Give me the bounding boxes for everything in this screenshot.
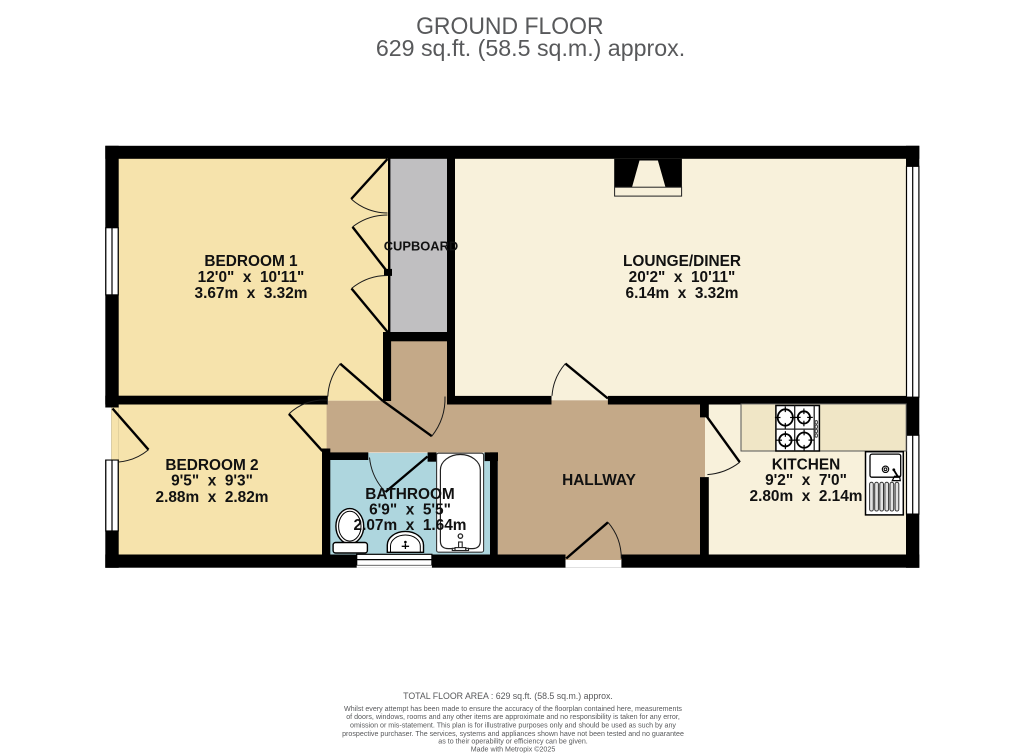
svg-text:BEDROOM 2: BEDROOM 2 — [165, 457, 258, 474]
svg-text:HALLWAY: HALLWAY — [562, 472, 637, 489]
svg-text:20'2" x 10'11": 20'2" x 10'11" — [629, 269, 736, 286]
svg-text:KITCHEN: KITCHEN — [772, 457, 840, 474]
svg-text:9'2" x 7'0": 9'2" x 7'0" — [765, 472, 847, 489]
svg-text:6.14m x 3.32m: 6.14m x 3.32m — [626, 285, 739, 302]
svg-text:2.07m x 1.64m: 2.07m x 1.64m — [354, 517, 467, 534]
svg-text:Made with Metropix ©2025: Made with Metropix ©2025 — [471, 744, 556, 753]
svg-text:2.80m x 2.14m: 2.80m x 2.14m — [750, 488, 863, 505]
svg-text:BEDROOM 1: BEDROOM 1 — [204, 253, 298, 270]
svg-text:9'5" x 9'3": 9'5" x 9'3" — [171, 473, 253, 490]
svg-text:BATHROOM: BATHROOM — [365, 486, 454, 503]
svg-text:629 sq.ft. (58.5 sq.m.) approx: 629 sq.ft. (58.5 sq.m.) approx. — [376, 35, 685, 61]
svg-text:TOTAL FLOOR AREA : 629 sq.ft.: TOTAL FLOOR AREA : 629 sq.ft. (58.5 sq.m… — [403, 691, 613, 701]
svg-text:6'9" x 5'5": 6'9" x 5'5" — [369, 502, 451, 519]
svg-text:LOUNGE/DINER: LOUNGE/DINER — [623, 253, 741, 270]
svg-text:12'0" x 10'11": 12'0" x 10'11" — [198, 269, 305, 286]
svg-text:3.67m x 3.32m: 3.67m x 3.32m — [195, 285, 308, 302]
svg-text:CUPBOARD: CUPBOARD — [384, 239, 458, 254]
svg-text:2.88m x 2.82m: 2.88m x 2.82m — [156, 489, 269, 506]
